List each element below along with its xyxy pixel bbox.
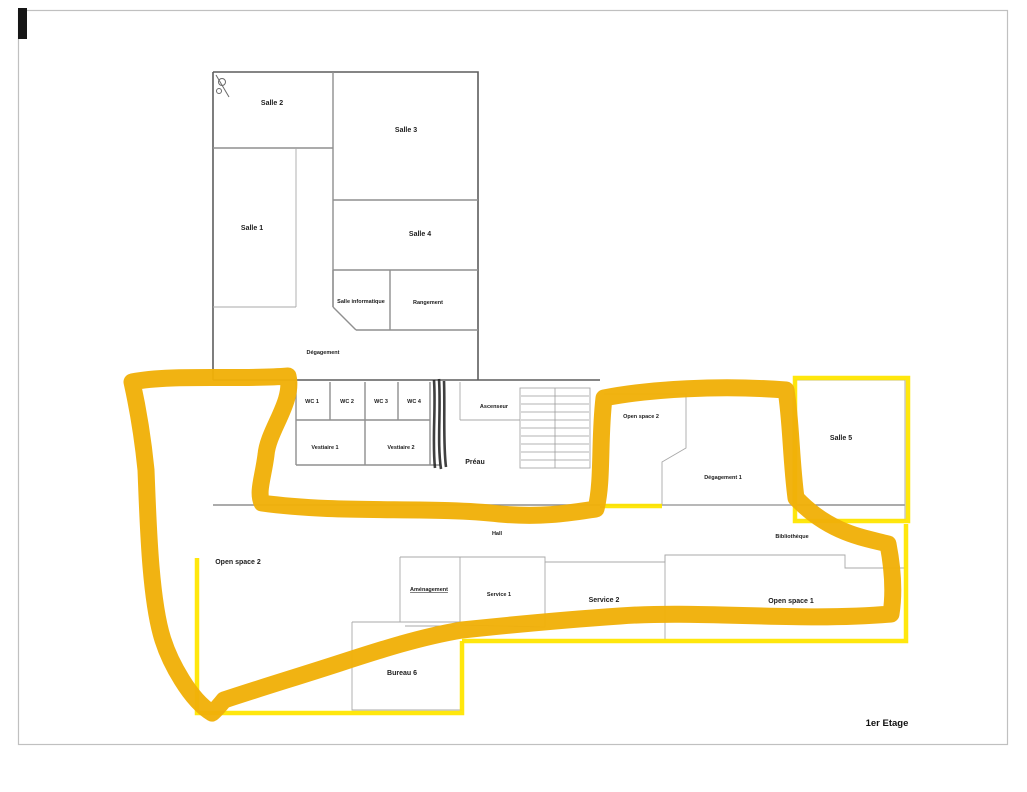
floor-plan-canvas: Salle 2 Salle 1 Salle 3 Salle 4 Salle in… [0, 0, 1027, 792]
room-label-bibliotheque: Bibliothèque [775, 534, 808, 540]
room-label-bureau-6: Bureau 6 [387, 670, 417, 677]
room-label-salle-5: Salle 5 [830, 435, 852, 442]
room-label-preau: Préau [465, 459, 484, 466]
room-label-salle-4: Salle 4 [409, 231, 431, 238]
room-label-degagement-1: Dégagement 1 [704, 475, 742, 481]
scan-corner-mark [18, 8, 27, 39]
room-label-open-space-1: Open space 1 [768, 598, 814, 605]
room-label-salle-1: Salle 1 [241, 225, 263, 232]
room-label-vestiaire-1: Vestiaire 1 [311, 445, 338, 451]
room-label-salle-3: Salle 3 [395, 127, 417, 134]
room-label-service-2: Service 2 [589, 597, 620, 604]
room-label-hall: Hall [492, 531, 503, 537]
room-label-salle-informatique: Salle informatique [337, 299, 385, 305]
room-label-amenagement: Aménagement [410, 587, 448, 593]
room-label-vestiaire-2: Vestiaire 2 [387, 445, 414, 451]
room-label-ascenseur: Ascenseur [480, 404, 509, 410]
scanned-floor-plan-page: Salle 2 Salle 1 Salle 3 Salle 4 Salle in… [0, 0, 1027, 792]
room-label-degagement: Dégagement [306, 350, 339, 356]
room-label-wc-1: WC 1 [305, 399, 319, 405]
room-label-open-space-2-upper: Open space 2 [623, 414, 659, 420]
room-label-wc-3: WC 3 [374, 399, 388, 405]
room-label-wc-4: WC 4 [407, 399, 422, 405]
floor-title: 1er Etage [866, 718, 909, 729]
room-label-service-1: Service 1 [487, 592, 511, 598]
room-label-wc-2: WC 2 [340, 399, 354, 405]
room-label-salle-2: Salle 2 [261, 100, 283, 107]
room-label-open-space-2: Open space 2 [215, 559, 261, 566]
room-label-rangement: Rangement [413, 300, 443, 306]
